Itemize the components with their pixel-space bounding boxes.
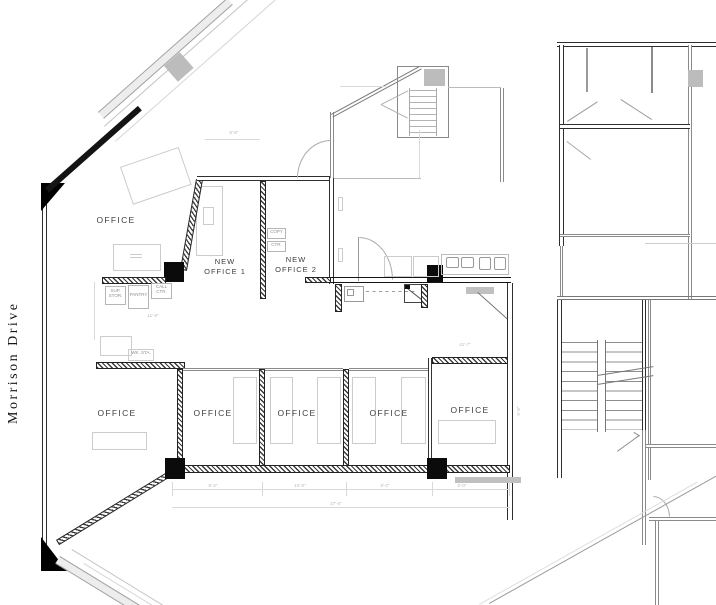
service-stair-treads: [410, 90, 436, 134]
room-label-supply-storage: SUP. STOR.: [105, 289, 126, 299]
wall-corridor-east: [507, 283, 513, 520]
room-label-office-s1: OFFICE: [85, 408, 149, 419]
door-leaf-corridor: [477, 292, 508, 320]
cabinet-copy-label: COPY: [267, 230, 286, 235]
room-label-pantry: PANTRY: [128, 293, 149, 298]
column-nw: [164, 262, 184, 282]
line-extension-178: [334, 178, 421, 180]
dimension-bottom-total: 27'-4": [319, 501, 353, 506]
dim-tick-5: [509, 482, 510, 496]
room-label-office-s3: OFFICE: [265, 408, 329, 419]
facade-diagonal-se: [489, 475, 716, 605]
wall-hatched-office-divider-3: [343, 369, 349, 468]
street-label: Morrison Drive: [6, 302, 22, 425]
service-box-1-inner: [347, 289, 354, 296]
service-stair-rail-right: [436, 88, 437, 136]
dimension-bottom-2: 10'-0": [283, 483, 317, 488]
wall-hatched-offices-bottom: [168, 465, 510, 473]
wall-hatched-service-right: [421, 284, 428, 308]
wall-new-office-2-right: [329, 176, 334, 284]
wall-east-room-bottom: [560, 234, 690, 237]
room-label-call-center: CALL CTR.: [151, 285, 172, 295]
room-label-new-office-1: NEW OFFICE 1: [194, 257, 256, 277]
dimension-bottom-1: 8'-2": [196, 483, 230, 488]
column-shaft: [424, 69, 445, 86]
room-label-new-office-2: NEW OFFICE 2: [265, 255, 327, 275]
wall-east-top: [557, 42, 716, 47]
wall-hatched-office5-top: [432, 357, 508, 364]
dimension-line-bottom: [172, 489, 510, 490]
door-arc-upper-room: [297, 140, 331, 178]
wall-stair-corridor: [648, 300, 651, 480]
dimension-line-top: [205, 139, 260, 140]
room-label-workstation: WK. STA.: [126, 351, 156, 356]
wall-hatched-new-office-divider: [260, 181, 266, 299]
door-leaf-east-1: [567, 101, 598, 121]
wall-top-right-room-horizontal: [448, 87, 501, 88]
column-east: [688, 70, 703, 87]
wall-se-horizontal-1: [645, 444, 716, 448]
line-top-mid: [340, 86, 386, 87]
desk-angled: [120, 147, 192, 205]
cabinet-ctr-label: CTR.: [267, 243, 286, 248]
wall-se-vertical-1: [642, 430, 646, 545]
wall-east-partition-2: [651, 47, 653, 93]
wall-hatched-center-left: [305, 277, 331, 283]
sink-3: [479, 257, 491, 270]
wall-office5-left: [428, 358, 432, 468]
column-s-mid: [427, 458, 447, 479]
service-stair-rail-left: [409, 88, 410, 136]
wall-hatched-service-left: [335, 284, 342, 312]
desk-office-s5: [438, 420, 496, 444]
counter-a: [384, 256, 412, 277]
dimension-bottom-3: 8'-2": [368, 483, 402, 488]
dimension-line-bottom-total: [172, 507, 510, 508]
desk-office-s1: [92, 432, 147, 450]
door-frame-2: [338, 248, 343, 262]
column-sw: [165, 458, 185, 479]
wall-east-left-upper: [559, 45, 564, 246]
facade-band-bottom: [55, 556, 162, 605]
sink-4: [494, 257, 506, 270]
sink-2: [461, 257, 474, 268]
wall-se-vertical-2: [655, 521, 659, 605]
dim-tick-3: [346, 482, 347, 496]
room-label-office-nw: OFFICE: [84, 215, 148, 226]
room-label-office-s5: OFFICE: [438, 405, 502, 416]
dimension-extension-left: [94, 282, 95, 340]
line-vertical-420: [419, 130, 420, 178]
door-leaf-east-3: [566, 141, 591, 160]
wall-diagonal-bottom-hatched: [56, 469, 175, 545]
dimension-office5-vertical: 5'-8": [516, 397, 521, 425]
stair-direction-arrow: [617, 435, 639, 452]
wall-east-mid-horizontal: [560, 124, 690, 129]
counter-b: [413, 256, 439, 277]
sink-1: [446, 257, 459, 268]
dim-tick-4: [432, 482, 433, 496]
dim-tick-1: [172, 482, 173, 496]
room-label-office-s2: OFFICE: [181, 408, 245, 419]
wall-center-horizontal: [329, 277, 511, 283]
dim-tick-2: [262, 482, 263, 496]
wall-east-partition-1: [586, 48, 588, 92]
wall-se-horizontal-2: [649, 517, 716, 521]
room-label-office-s4: OFFICE: [357, 408, 421, 419]
dimension-left: 11'-6": [138, 313, 168, 318]
wall-top-right-room-vertical: [500, 88, 504, 182]
desk-chair: [203, 207, 214, 225]
door-frame-1: [338, 197, 343, 211]
mop-sink-tick: [405, 285, 410, 289]
floor-plan: Morrison Drive OFFICE SUP. STOR. PANTRY …: [0, 0, 716, 605]
dimension-top: 6'-8": [214, 130, 254, 135]
door-leaf-east-2: [620, 99, 652, 120]
wall-offices-top-right: [349, 368, 429, 371]
wall-stair-block-top: [557, 296, 716, 300]
wall-east-left-lower: [560, 246, 563, 296]
dimension-bottom-4: 5'-0": [447, 483, 477, 488]
wall-hatched-offices-top-left: [96, 362, 185, 369]
credenza-mark: [130, 254, 142, 258]
line-east-corridor: [645, 243, 716, 245]
wall-street-vertical: [42, 186, 47, 546]
facade-band-top: [98, 0, 233, 119]
stair-stringer: [597, 340, 606, 432]
dimension-corridor: 41'-7": [448, 342, 482, 347]
